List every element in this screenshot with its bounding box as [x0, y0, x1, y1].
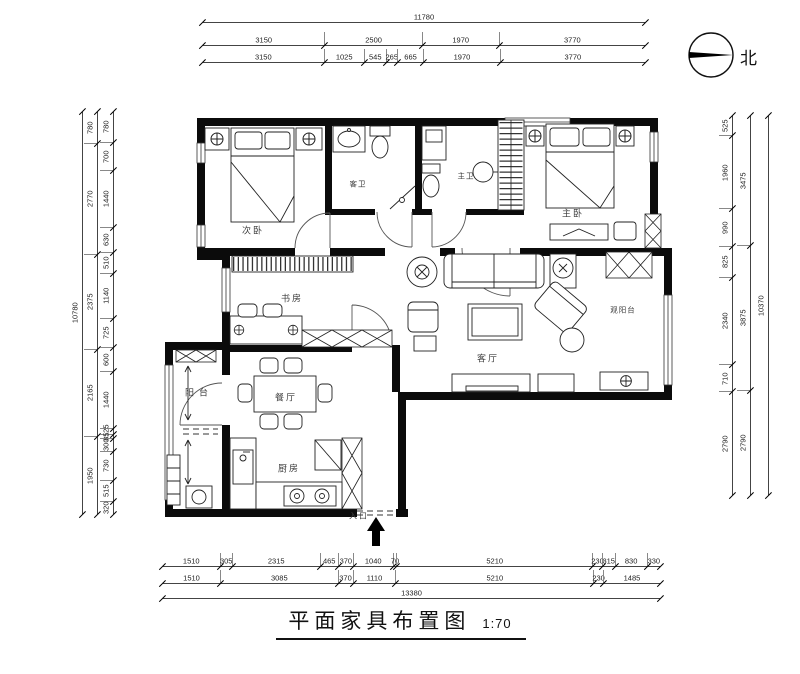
dim-segment: 230: [592, 553, 602, 566]
dim-value: 2770: [87, 190, 95, 207]
drawing-title-row: 平面家具布置图1:70: [200, 605, 600, 635]
dim-segment: 730: [100, 451, 113, 480]
dim-segment: 1950: [84, 436, 97, 514]
dim-segment: 3150: [203, 49, 324, 62]
dim-segment: 2340: [719, 277, 732, 364]
dim-value: 465: [323, 557, 336, 565]
dim-segment: 1510: [163, 570, 220, 583]
dim-value: 700: [103, 150, 111, 163]
room-label-master-bedroom: 主卧: [562, 207, 584, 220]
dim-segment: 525: [719, 116, 732, 135]
dim-segment: 2790: [719, 391, 732, 495]
dim-segment: 545: [364, 49, 386, 62]
dim-right-middle: 347538752790: [737, 116, 751, 495]
dim-value: 2165: [87, 384, 95, 401]
dim-value: 665: [404, 53, 417, 61]
dim-value: 2315: [268, 557, 285, 565]
dim-segment: 3475: [737, 116, 750, 245]
furniture-guest-bath: [333, 126, 415, 209]
dim-segment: 780: [84, 112, 97, 143]
dim-value: 3770: [564, 53, 581, 61]
dim-right-inner: 525196099082523407102790: [719, 116, 733, 495]
dim-value: 1440: [103, 392, 111, 409]
dim-value: 1950: [87, 467, 95, 484]
title-underline: [276, 638, 526, 640]
furniture-master-bedroom: [526, 124, 636, 240]
furniture-view-balcony: [600, 372, 648, 390]
dim-segment: 780: [100, 112, 113, 142]
dim-segment: 3770: [499, 32, 645, 45]
dim-value: 510: [103, 257, 111, 270]
dim-value: 545: [369, 53, 382, 61]
dim-bottom-total: 13380: [163, 585, 660, 599]
dim-value: 13380: [401, 589, 422, 597]
basin-icon: [473, 162, 493, 182]
dim-value: 1025: [336, 53, 353, 61]
armchair-icon: [533, 280, 589, 334]
dim-value: 1485: [624, 574, 641, 582]
dim-value: 300: [103, 438, 111, 451]
dim-value: 330: [648, 557, 661, 565]
dim-value: 1510: [183, 574, 200, 582]
dim-segment: 710: [719, 364, 732, 391]
dim-segment: 3085: [220, 570, 338, 583]
side-table-icon: [560, 328, 584, 352]
dim-value: 725: [103, 327, 111, 340]
dim-segment: 5210: [395, 570, 593, 583]
dim-segment: 2790: [737, 390, 750, 495]
dim-value: 10370: [758, 295, 766, 316]
dim-value: 730: [103, 459, 111, 472]
dim-segment: 3150: [203, 32, 324, 45]
dim-segment: 830: [615, 553, 647, 566]
furniture-secondary-bedroom: [205, 128, 322, 222]
dim-top-row2: 3150250019703770: [203, 32, 645, 46]
dim-value: 830: [625, 557, 638, 565]
dim-value: 3085: [271, 574, 288, 582]
dim-value: 3875: [740, 310, 748, 327]
room-label-kitchen: 厨房: [278, 462, 300, 475]
dim-segment: 305: [220, 553, 232, 566]
toilet-icon: [422, 164, 440, 173]
dim-value: 2340: [722, 313, 730, 330]
room-label-guest-bath: 客卫: [350, 179, 367, 190]
dim-value: 370: [339, 574, 352, 582]
dim-value: 2375: [87, 293, 95, 310]
dim-value: 1110: [367, 574, 383, 582]
room-label-view-balcony: 观阳台: [610, 305, 636, 316]
dim-segment: 1960: [719, 135, 732, 208]
dim-value: 525: [722, 119, 730, 132]
room-label-study: 书房: [281, 292, 303, 305]
dim-segment: 1140: [100, 273, 113, 318]
dim-value: 370: [340, 557, 353, 565]
dim-bottom-row2: 15103085370111052102301485: [163, 570, 660, 584]
dim-segment: 1970: [422, 32, 499, 45]
dim-right-outer: 10370: [755, 116, 769, 495]
room-label-entrance: 入口: [349, 511, 369, 522]
tv-stand-icon: [550, 224, 608, 240]
dim-segment: 1440: [100, 371, 113, 428]
lounge-chair-icon: [408, 302, 438, 332]
dim-value: 320: [103, 502, 111, 515]
dim-value: 1140: [103, 288, 111, 304]
dim-segment: 465: [320, 553, 338, 566]
dim-segment: 700: [100, 142, 113, 170]
dim-value: 315: [602, 557, 615, 565]
dim-segment: 600: [100, 347, 113, 371]
dim-segment: 2500: [324, 32, 421, 45]
dim-segment: 1040: [353, 553, 393, 566]
dim-value: 990: [722, 221, 730, 234]
dim-value: 1040: [365, 557, 382, 565]
dim-value: 2790: [722, 435, 730, 452]
dim-value: 515: [103, 484, 111, 497]
dim-segment: 2375: [84, 254, 97, 349]
entrance-arrow-icon: [367, 517, 385, 546]
dim-segment: 320: [100, 501, 113, 514]
dim-segment: 2315: [232, 553, 320, 566]
dim-value: 1960: [722, 164, 730, 181]
dim-left-inner: 7807001440630510114072560014401258530073…: [100, 112, 114, 514]
dim-segment: 3875: [737, 245, 750, 390]
bookshelf-icon: [232, 256, 353, 272]
dim-value: 710: [722, 372, 730, 385]
dim-segment: 665: [397, 49, 423, 62]
dim-bottom-row1: 151030523154653701040705210230315830330: [163, 553, 660, 567]
dim-value: 3475: [740, 172, 748, 189]
dim-value: 1440: [103, 191, 111, 208]
dim-value: 780: [87, 121, 95, 134]
dim-top-row3: 3150102554526566519703770: [203, 49, 645, 63]
dim-value: 3770: [564, 36, 581, 44]
dim-segment: 3770: [500, 49, 645, 62]
dim-value: 5210: [486, 574, 503, 582]
drawing-scale: 1:70: [482, 616, 511, 631]
toilet-icon: [370, 126, 390, 136]
dim-left-outer: 10780: [69, 112, 83, 514]
dim-value: 630: [103, 234, 111, 247]
dim-segment: 510: [100, 252, 113, 273]
room-label-balcony: 阳台: [185, 386, 213, 399]
dim-segment: 515: [100, 480, 113, 501]
dim-value: 2790: [740, 435, 748, 452]
dim-segment: 10370: [755, 116, 768, 495]
dim-value: 1970: [452, 36, 469, 44]
dim-segment: 825: [719, 246, 732, 277]
room-label-master-bath: 主卫: [458, 171, 475, 182]
dim-top-total: 11780: [203, 9, 645, 23]
dim-segment: 725: [100, 318, 113, 347]
dim-segment: 1510: [163, 553, 220, 566]
dim-value: 11780: [414, 13, 434, 21]
dim-segment: 370: [338, 570, 353, 583]
dim-left-middle: 7802770237521651950: [84, 112, 98, 514]
room-label-living-room: 客厅: [477, 352, 499, 365]
dim-segment: 1025: [324, 49, 364, 62]
dim-value: 600: [103, 353, 111, 366]
dim-value: 10780: [72, 303, 80, 324]
dim-segment: 11780: [203, 9, 645, 22]
room-label-dining-room: 餐厅: [275, 391, 297, 404]
dim-value: 5210: [486, 557, 503, 565]
dim-segment: 330: [647, 553, 660, 566]
dim-segment: 1485: [603, 570, 660, 583]
dim-segment: 1970: [423, 49, 499, 62]
furniture-master-bath: [422, 120, 524, 210]
dim-value: 3150: [255, 36, 272, 44]
dim-segment: 2165: [84, 349, 97, 436]
dim-segment: 300: [100, 438, 113, 451]
room-label-secondary-bedroom: 次卧: [242, 224, 264, 237]
dim-segment: 230: [593, 570, 603, 583]
dim-segment: 990: [719, 208, 732, 245]
furniture-living-room: [407, 254, 588, 392]
north-label: 北: [740, 44, 757, 69]
dim-segment: 1110: [353, 570, 396, 583]
dim-segment: 630: [100, 227, 113, 252]
dim-segment: 370: [338, 553, 353, 566]
dim-value: 2500: [365, 36, 382, 44]
dim-segment: 5210: [396, 553, 592, 566]
dim-value: 780: [103, 121, 111, 134]
dim-segment: 1440: [100, 170, 113, 227]
dim-segment: 315: [602, 553, 615, 566]
dim-value: 825: [722, 256, 730, 269]
dim-value: 1510: [183, 557, 200, 565]
dim-value: 3150: [255, 53, 272, 61]
dim-segment: 265: [386, 49, 397, 62]
dim-segment: 10780: [69, 112, 82, 514]
dim-segment: 2770: [84, 143, 97, 254]
dim-value: 1970: [454, 53, 471, 61]
floor-plan-sheet: 北 11780 3150250019703770 315010255452656…: [0, 0, 800, 674]
dim-segment: 13380: [163, 585, 660, 598]
dim-value: 305: [220, 557, 233, 565]
drawing-title: 平面家具布置图: [288, 609, 470, 633]
